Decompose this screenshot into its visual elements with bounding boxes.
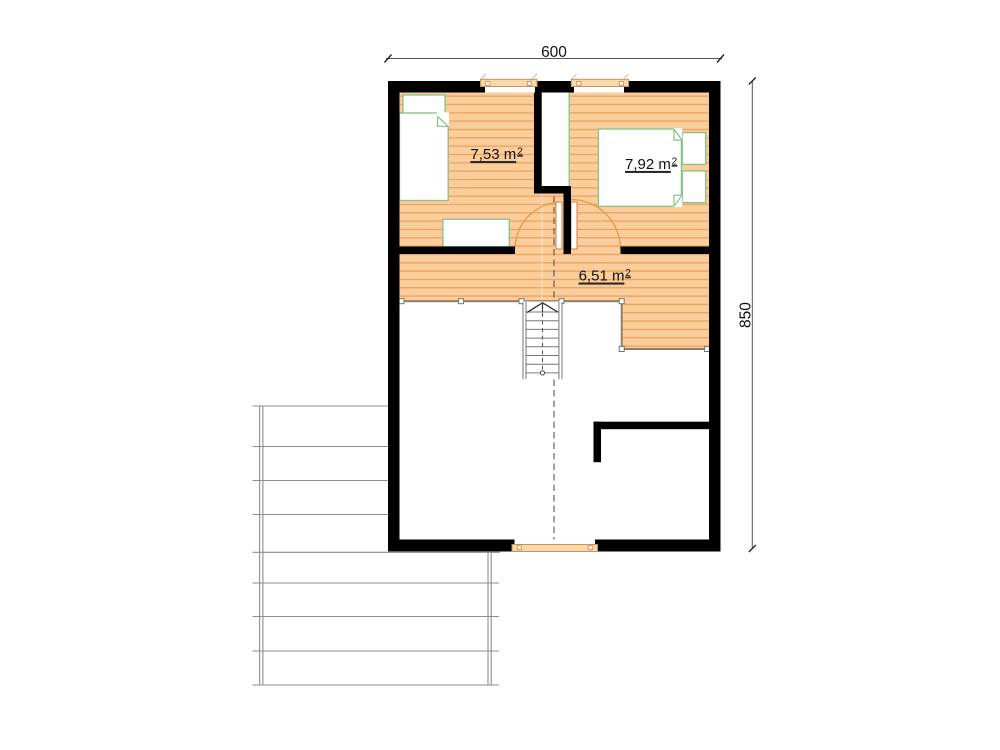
svg-text:7,53 m: 7,53 m — [470, 146, 516, 163]
svg-text:600: 600 — [541, 44, 567, 61]
svg-text:7,92 m: 7,92 m — [625, 156, 671, 173]
svg-text:6,51 m: 6,51 m — [579, 267, 625, 284]
svg-text:850: 850 — [738, 302, 755, 328]
